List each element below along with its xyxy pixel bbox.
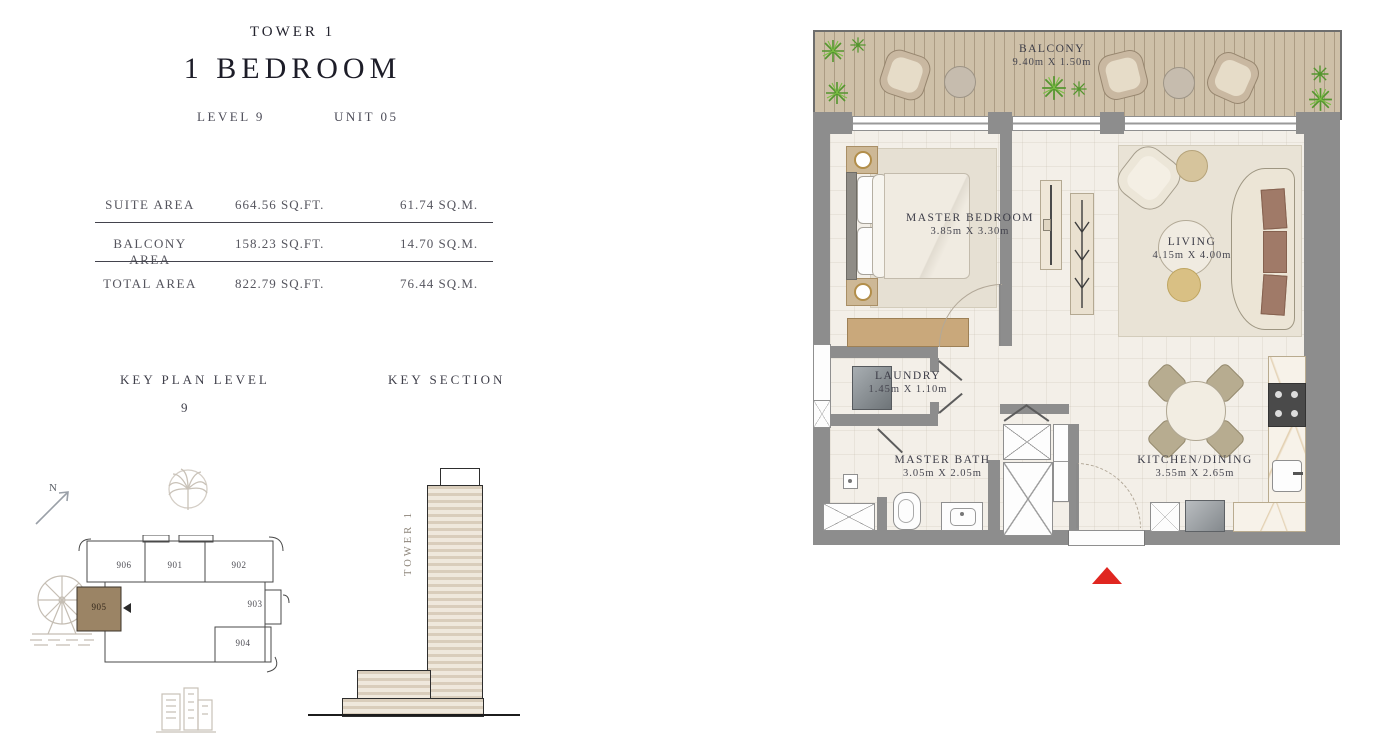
area-row-sqft: 664.56 SQ.FT. xyxy=(235,197,324,213)
key-section-diagram: TOWER 1 xyxy=(305,452,530,737)
window-bedroom xyxy=(852,116,990,131)
room-dims: 3.05m X 2.05m xyxy=(860,467,1025,480)
closet xyxy=(1003,462,1053,536)
unit-label: UNIT 05 xyxy=(334,109,399,125)
tower-elevation-label: TOWER 1 xyxy=(403,486,419,576)
dining-table xyxy=(1166,381,1226,441)
plant-icon xyxy=(1310,64,1330,84)
balcony-door xyxy=(1012,116,1102,131)
nightstand xyxy=(846,278,878,306)
wall-bedroom-bottom xyxy=(830,346,938,358)
area-row-label: TOTAL AREA xyxy=(95,276,205,292)
kitchen-shaft xyxy=(1150,502,1180,532)
area-row-sqm: 61.74 SQ.M. xyxy=(400,197,478,213)
room-name: MASTER BEDROOM xyxy=(880,212,1060,225)
room-name: BALCONY xyxy=(952,43,1152,56)
balcony-table xyxy=(1163,67,1195,99)
laundry-label: LAUNDRY 1.45m X 1.10m xyxy=(828,370,988,396)
palm-island-icon xyxy=(163,466,213,516)
shower xyxy=(823,503,875,531)
room-dims: 9.40m X 1.50m xyxy=(952,56,1152,69)
room-name: MASTER BATH xyxy=(860,454,1025,467)
area-row-sqm: 14.70 SQ.M. xyxy=(400,236,478,252)
tower-body xyxy=(427,485,483,716)
area-row-sqft: 822.79 SQ.FT. xyxy=(235,276,324,292)
master-bedroom-label: MASTER BEDROOM 3.85m X 3.30m xyxy=(880,212,1060,238)
area-row-label: SUITE AREA xyxy=(95,197,205,213)
toilet xyxy=(893,492,921,530)
balcony-table xyxy=(944,66,976,98)
plant-icon xyxy=(1070,80,1088,98)
table-divider xyxy=(95,261,493,262)
plant-icon xyxy=(824,80,850,106)
key-unit-902: 902 xyxy=(226,560,252,570)
north-label: N xyxy=(49,482,57,494)
entrance-marker-icon xyxy=(1092,567,1122,584)
fridge xyxy=(1185,500,1225,532)
unit-type-title: 1 BEDROOM xyxy=(175,52,410,86)
area-row-sqm: 76.44 SQ.M. xyxy=(400,276,478,292)
ground-line xyxy=(308,714,520,716)
wall xyxy=(1100,112,1124,134)
balcony-label: BALCONY 9.40m X 1.50m xyxy=(952,43,1152,69)
table-divider xyxy=(95,222,493,223)
room-dims: 4.15m X 4.00m xyxy=(1102,249,1282,262)
bath-fixture xyxy=(843,474,858,489)
room-dims: 3.85m X 3.30m xyxy=(880,225,1060,238)
hall-closet xyxy=(1070,193,1094,315)
key-section-title: KEY SECTION xyxy=(388,372,505,388)
wall-toilet-nook xyxy=(877,497,887,530)
wall-left xyxy=(813,112,830,545)
key-unit-903: 903 xyxy=(242,599,268,609)
key-unit-905-highlighted: 905 xyxy=(86,602,112,612)
wall-right xyxy=(1304,112,1340,545)
area-row-sqft: 158.23 SQ.FT. xyxy=(235,236,324,252)
kitchen-dining-label: KITCHEN/DINING 3.55m X 2.65m xyxy=(1105,454,1285,480)
room-name: LIVING xyxy=(1102,236,1282,249)
key-unit-906: 906 xyxy=(111,560,137,570)
plant-icon xyxy=(1040,74,1068,102)
room-name: KITCHEN/DINING xyxy=(1105,454,1285,467)
nightstand xyxy=(846,146,878,174)
room-dims: 3.55m X 2.65m xyxy=(1105,467,1285,480)
plant-icon xyxy=(820,38,846,64)
bath-vanity xyxy=(941,502,983,531)
key-plan-diagram: 906 901 902 903 904 905 xyxy=(75,535,290,680)
room-name: LAUNDRY xyxy=(828,370,988,383)
wall-laundry-bottom xyxy=(830,414,938,426)
kitchen-counter-corner xyxy=(1233,502,1306,532)
bedroom-door-leaf xyxy=(999,284,1001,346)
window-living xyxy=(1124,116,1298,131)
city-buildings-icon xyxy=(148,678,220,738)
unit-pointer-icon xyxy=(123,603,131,613)
entry-opening xyxy=(1068,530,1145,546)
floorplan-page: TOWER 1 1 BEDROOM LEVEL 9 UNIT 05 SUITE … xyxy=(0,0,1375,752)
tower-podium-upper xyxy=(357,670,431,701)
closet xyxy=(1003,424,1051,460)
wall-bottom xyxy=(1143,530,1340,545)
duct-shaft xyxy=(813,400,831,428)
master-bath-label: MASTER BATH 3.05m X 2.05m xyxy=(860,454,1025,480)
level-label: LEVEL 9 xyxy=(197,109,265,125)
key-plan-title: KEY PLAN LEVEL xyxy=(120,372,270,388)
living-label: LIVING 4.15m X 4.00m xyxy=(1102,236,1282,262)
room-dims: 1.45m X 1.10m xyxy=(828,383,988,396)
stove xyxy=(1268,383,1306,427)
key-plan-level: 9 xyxy=(181,400,191,416)
plant-icon xyxy=(849,36,867,54)
tower-title: TOWER 1 xyxy=(200,24,385,41)
side-table xyxy=(1176,150,1208,182)
coffee-table xyxy=(1167,268,1201,302)
entry-door-leaf xyxy=(1076,463,1078,528)
wall xyxy=(988,112,1012,134)
closet-door-panel xyxy=(1053,424,1069,502)
area-row-label: BALCONY AREA xyxy=(95,236,205,268)
key-unit-904: 904 xyxy=(230,638,256,648)
key-unit-901: 901 xyxy=(162,560,188,570)
plant-icon xyxy=(1307,86,1334,113)
